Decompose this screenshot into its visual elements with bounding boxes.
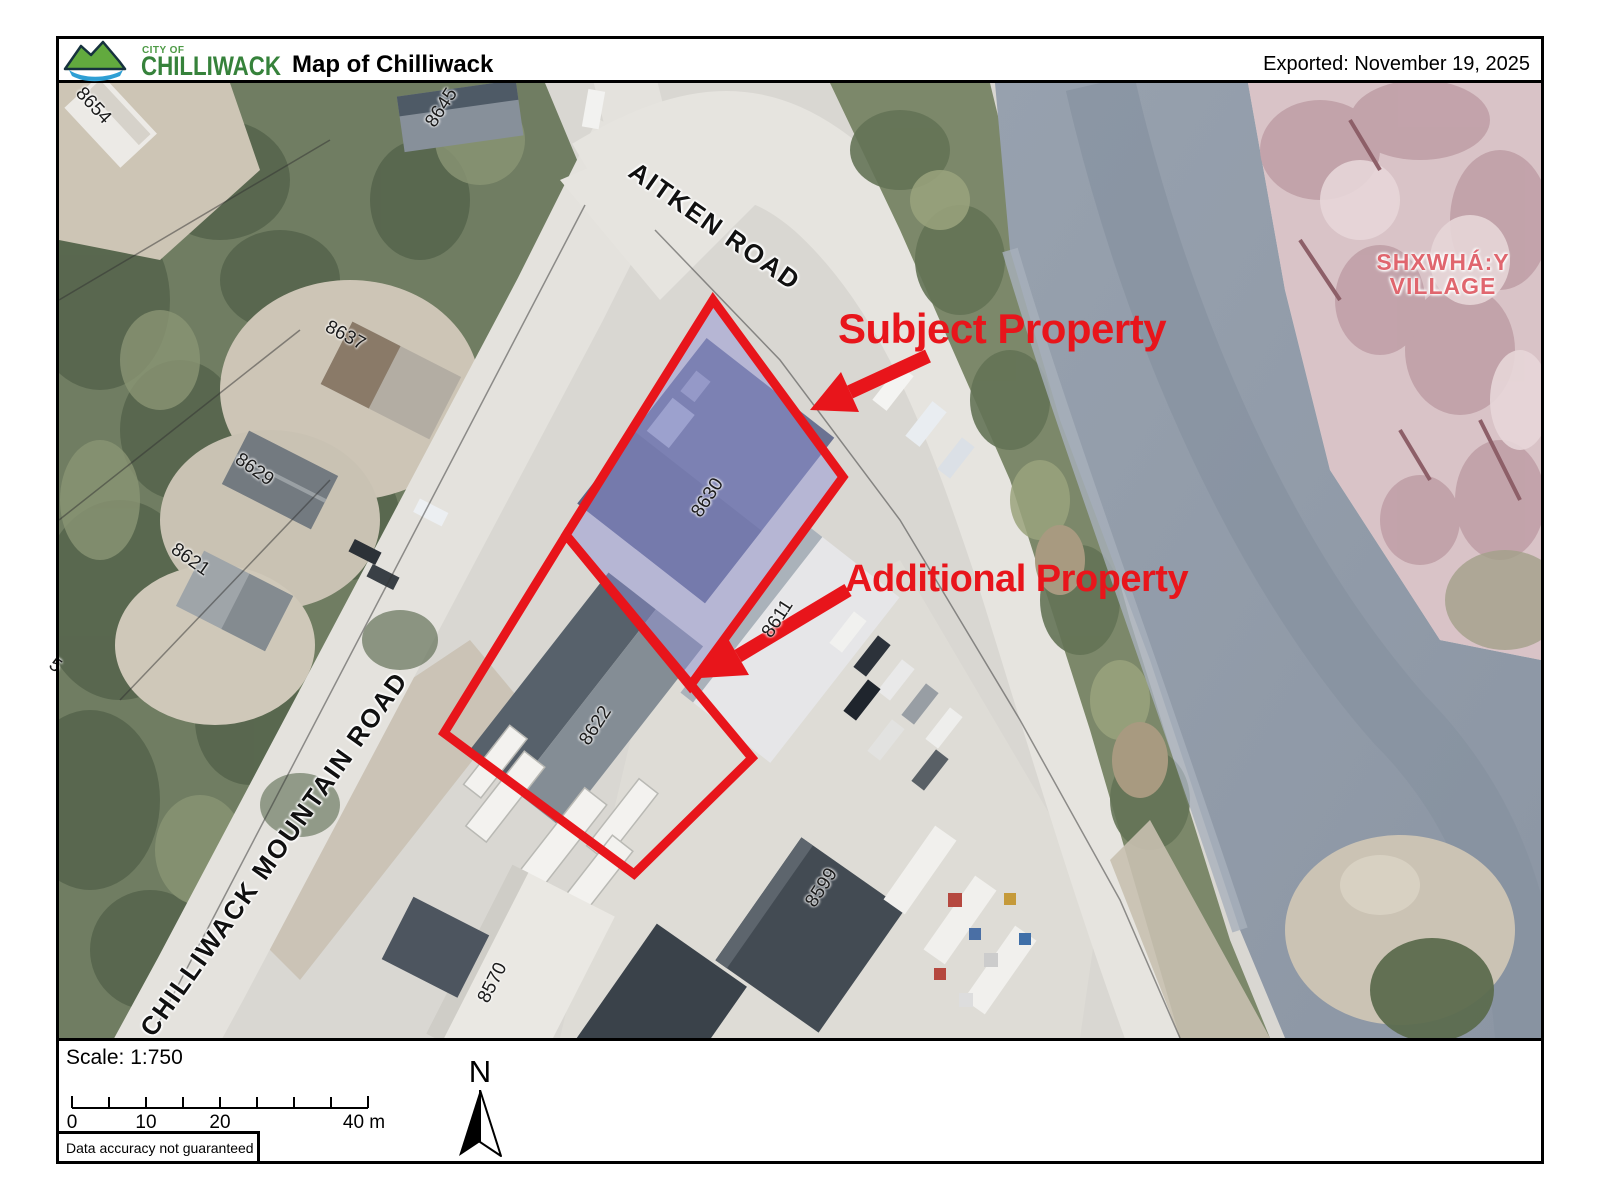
annotation-additional-property: Additional Property: [845, 558, 1188, 601]
city-logo: CITY OF CHILLIWACK: [62, 38, 292, 82]
village-label: SHXWHÁ:Y VILLAGE: [1376, 250, 1509, 298]
scale-tick-label: 10: [135, 1112, 156, 1134]
annotation-subject-property: Subject Property: [838, 305, 1166, 353]
logo-mountains: [65, 42, 125, 69]
village-label-line1: SHXWHÁ:Y: [1376, 250, 1509, 274]
scale-tick-label: 20: [209, 1112, 230, 1134]
disclaimer-text: Data accuracy not guaranteed: [66, 1140, 254, 1156]
map-export-page: AITKEN ROADCHILLIWACK MOUNTAIN ROAD86548…: [0, 0, 1600, 1200]
scale-bar: [60, 1092, 380, 1114]
aerial-map: [59, 83, 1541, 1038]
page-title: Map of Chilliwack: [292, 51, 493, 79]
village-label-line2: VILLAGE: [1376, 274, 1509, 298]
scale-tick-label: 0: [67, 1112, 78, 1134]
logo-water: [69, 70, 123, 81]
logo-chilliwack-text: CHILLIWACK: [141, 51, 281, 81]
footer-separator: [56, 1038, 1544, 1041]
north-arrow-icon: [455, 1090, 505, 1162]
scale-label: Scale: 1:750: [66, 1046, 183, 1070]
export-date: Exported: November 19, 2025: [1263, 53, 1530, 76]
scale-tick-label: 40 m: [343, 1112, 385, 1134]
north-label: N: [469, 1054, 491, 1090]
